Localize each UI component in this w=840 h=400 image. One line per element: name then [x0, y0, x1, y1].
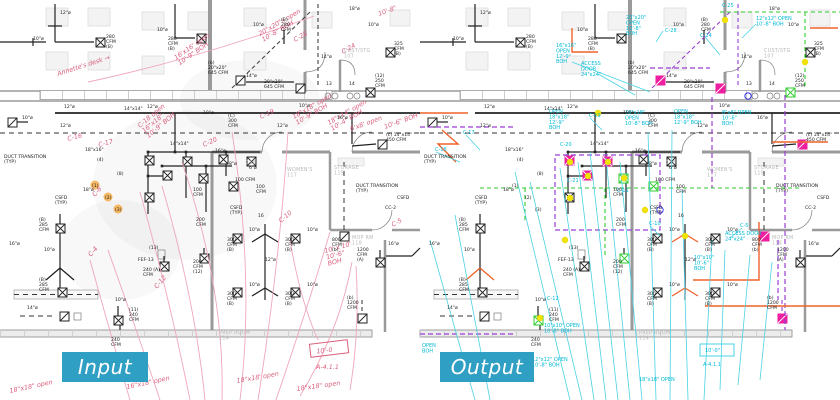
plan-label: 200CFM: [196, 217, 206, 228]
plan-label: 10"ø: [669, 227, 680, 233]
plan-label: 12"ø: [480, 10, 491, 16]
cad-note: C-5: [740, 223, 748, 229]
plan-label: 800CFM(b): [752, 237, 762, 253]
markup-note: 18"x18" open: [9, 378, 54, 395]
plan-label: 300CFM(B): [647, 291, 657, 307]
plan-label: (4): [97, 157, 104, 163]
cad-note: C-10: [649, 221, 661, 227]
plan-label: 18"x16": [505, 147, 524, 153]
plan-label: 10"ø: [669, 282, 680, 288]
plan-label: WOMEN'S117: [287, 167, 313, 178]
plan-label: 1200CFM(A): [357, 247, 369, 263]
cad-note: 20"x20"OPEN10'-8"BOH: [626, 15, 646, 37]
cad-note: OPENBOH: [422, 343, 436, 354]
plan-label: 10"ø: [249, 282, 260, 288]
plan-label: (2): [525, 195, 532, 201]
plan-label: WOMEN'S117: [707, 167, 733, 178]
input-label-badge: Input: [62, 352, 148, 382]
plan-label: 280CFM(B): [526, 34, 536, 50]
markup-note: C-16: [66, 131, 82, 143]
plan-label: 100CFM: [193, 187, 203, 198]
plan-label: DUCT TRANSITION(TYP): [356, 183, 398, 194]
plan-label: 16"ø: [337, 115, 348, 121]
plan-label: 300CFM(B): [705, 237, 715, 253]
plan-label: 16"ø: [757, 115, 768, 121]
plan-label: 10"ø: [307, 282, 318, 288]
plan-label: 280CFM(B): [588, 36, 598, 52]
plan-label: 10"ø: [464, 247, 475, 253]
plan-label: 240CFM: [531, 337, 541, 348]
markup-note: 10'-6" BOH: [383, 111, 419, 131]
plan-label: 10"ø: [727, 282, 738, 288]
plan-label: (13): [569, 245, 579, 251]
plan-label: FEF-13: [138, 257, 154, 263]
plan-label: 12"ø: [64, 104, 75, 110]
plan-label: 300CFM(B): [227, 291, 237, 307]
floorplan-canvas: 10'-0 A-4.1.1 Annette's desk →16'x16' op…: [0, 0, 840, 400]
plan-label: 10"ø: [33, 36, 44, 42]
cad-note: 12"x12" OPEN10'-8" BOH: [532, 357, 568, 368]
plan-label: 240 (A)CFM: [563, 267, 580, 278]
plan-label: 18"x16": [85, 147, 104, 153]
plan-label: 300CFM(B): [705, 291, 715, 307]
plan-label: 10"ø: [203, 110, 214, 116]
cad-note: 18"x18" OPEN: [639, 377, 675, 383]
plan-label: (b)1200CFM: [767, 295, 779, 311]
plan-label: (c) 14"x14"450 CFM: [386, 132, 412, 143]
plan-label: 12"ø: [480, 123, 491, 129]
plan-label: 200CFM(12): [613, 259, 623, 275]
input-drawing-panel: 10'-0 A-4.1.1 Annette's desk →16'x16' op…: [0, 0, 420, 400]
markup-note: 18"x18' open: [236, 370, 279, 385]
plan-label: 10"ø: [249, 227, 260, 233]
plan-label: 10"ø: [307, 227, 318, 233]
plan-label: 10"ø: [719, 103, 730, 109]
markup-note: C-10: [277, 209, 294, 225]
plan-label: 280CFM(B): [106, 34, 116, 50]
plan-label: 13: [326, 81, 332, 87]
output-label-badge: Output: [440, 352, 534, 382]
plan-label: (C)300CFM: [648, 113, 658, 129]
cad-note: ACCESSDOOR24"x24": [581, 61, 601, 78]
plan-label: CSFD: [817, 195, 830, 201]
thermostat-symbol: [745, 93, 751, 99]
drawing-comparison: 10'-0 A-4.1.1 Annette's desk →16'x16' op…: [0, 0, 840, 400]
plan-label: (c) 14"x14"450 CFM: [806, 132, 832, 143]
plan-label: 100CFM: [613, 187, 623, 198]
plan-label: 100CFM: [256, 184, 266, 195]
plan-label: 16"ø: [215, 148, 226, 154]
plan-label: CSFD(TYP): [650, 205, 663, 216]
plan-label: (12)250CFM: [375, 73, 385, 89]
plan-label: CC-2: [805, 205, 816, 211]
cad-note: 8"x8" OPEN10'-6"BOH: [722, 110, 752, 127]
plan-label: 10"ø: [44, 247, 55, 253]
plan-label: (11)240CFM: [129, 307, 139, 323]
cad-note: C-17: [463, 130, 475, 136]
plan-label: 6"ø: [669, 165, 677, 171]
plan-label: 10"ø: [623, 110, 634, 116]
cad-note: C-24: [700, 33, 712, 39]
plan-label: 10"ø: [22, 115, 33, 121]
cad-note: C-12: [547, 296, 559, 302]
plan-label: (b)20"x20"645 CFM: [628, 60, 648, 76]
plan-label: 300CFM(B): [285, 291, 295, 307]
plan-label: DUCT TRANSITION(TYP): [424, 154, 466, 165]
plan-label: DUCT TRANSITION(TYP): [4, 154, 46, 165]
plan-label: CUST/STG107: [764, 48, 791, 59]
plan-label: CUST/STG107: [344, 48, 371, 59]
plan-label: 14"x14": [544, 106, 563, 112]
plan-label: 16"ø: [388, 241, 399, 247]
plan-label: 300CFM(B): [227, 237, 237, 253]
plan-label: (1): [92, 183, 99, 189]
plan-label: 1200CFM(A): [777, 247, 789, 263]
plan-label: (8): [537, 171, 544, 177]
plan-label: 8"ø: [229, 161, 237, 167]
plan-label: (8): [117, 171, 124, 177]
cad-note: C-20: [560, 142, 572, 148]
plan-label: 13: [746, 81, 752, 87]
plan-label: 12"ø: [60, 10, 71, 16]
cad-note: C-21: [567, 178, 579, 184]
input-label-text: Input: [78, 355, 132, 379]
plan-label: CSFD(TYP): [55, 195, 68, 206]
plan-label: FEF-13: [558, 257, 574, 263]
plan-label: 10"ø: [442, 115, 453, 121]
plan-label: 20"x20"645 CFM: [684, 79, 704, 90]
plan-label: 14"x14": [170, 141, 189, 147]
plan-label: (B)285CFM: [459, 217, 469, 233]
plan-label: 12"ø: [697, 123, 708, 129]
plan-label: STORAGE115: [334, 165, 359, 176]
cad-sheet-ref: A-4.1.1: [703, 362, 721, 368]
plan-label: (3): [535, 207, 542, 213]
plan-label: 12"ø: [147, 104, 158, 110]
output-label-text: Output: [451, 355, 523, 379]
plan-label: 12"ø: [60, 123, 71, 129]
plan-label: 18"ø: [769, 6, 780, 12]
plan-label: PREP ROOM114: [219, 330, 250, 341]
plan-label: 240CFM: [111, 337, 121, 348]
plan-label: 10"ø: [299, 103, 310, 109]
plan-label: 100 CFM: [235, 177, 255, 183]
plan-label: 300CFM(B): [647, 237, 657, 253]
plan-label: 14"ø: [741, 54, 752, 60]
plan-label: 100CFM: [676, 184, 686, 195]
plan-label: 14"ø: [246, 73, 257, 79]
markup-note: C-5: [390, 216, 403, 228]
plan-label: CSFD: [397, 195, 410, 201]
markup-dim-note: 10'-0: [316, 346, 333, 356]
plan-label: 14"x14": [590, 141, 609, 147]
plan-label: 12"ø: [277, 123, 288, 129]
plan-label: 10"ø: [115, 297, 126, 303]
plan-label: (3): [115, 207, 122, 213]
plan-label: 10"ø: [253, 22, 264, 28]
markup-note: 18"x18" open: [296, 379, 341, 393]
cad-note: 12"x12" OPEN10'-8" BOH: [756, 16, 792, 27]
plan-label: 16: [258, 213, 264, 219]
cad-note: C-19: [589, 113, 601, 119]
plan-label: 14"ø: [321, 54, 332, 60]
plan-label: 16: [678, 213, 684, 219]
cad-note: 10"x10"10'-6"BOH: [694, 255, 714, 272]
plan-label: (12)250CFM: [795, 73, 805, 89]
plan-label: 16"ø: [9, 241, 20, 247]
plan-label: MOP RM118: [352, 235, 374, 246]
plan-label: 16"ø: [635, 148, 646, 154]
plan-label: 100 CFM: [655, 177, 675, 183]
plan-label: 8"ø: [649, 161, 657, 167]
plan-label: 12"ø: [265, 257, 276, 263]
plan-label: (2): [105, 195, 112, 201]
plan-label: PREP ROOM114: [639, 330, 670, 341]
plan-label: (1): [512, 183, 519, 189]
plan-label: 10"ø: [368, 22, 379, 28]
plan-label: 14"ø: [447, 305, 458, 311]
plan-label: 18"ø: [349, 6, 360, 12]
plan-label: STORAGE115: [754, 165, 779, 176]
plan-label: (B)285CFM: [39, 217, 49, 233]
plan-label: 280CFM(B): [168, 36, 178, 52]
plan-label: 200CFM: [616, 217, 626, 228]
plan-label: CSFD(TYP): [475, 195, 488, 206]
plan-label: 12"ø: [685, 257, 696, 263]
plan-label: CC-2: [385, 205, 396, 211]
plan-label: 10"ø: [788, 22, 799, 28]
plan-label: 14"x14": [124, 106, 143, 112]
plan-label: 10"ø: [535, 297, 546, 303]
plan-label: 10"ø: [727, 227, 738, 233]
plan-label: 14"ø: [27, 305, 38, 311]
plan-label: 6"ø: [249, 165, 257, 171]
cad-note: C-16: [435, 147, 447, 153]
plan-label: MOP RM118: [772, 235, 794, 246]
cad-note: C-25: [722, 3, 734, 9]
plan-label: 12"ø: [484, 104, 495, 110]
plan-label: 12"ø: [567, 104, 578, 110]
plan-label: 16"ø: [808, 241, 819, 247]
plan-label: (4): [517, 157, 524, 163]
plan-label: 200CFM(12): [193, 259, 203, 275]
plan-label: (b)20"x20"645 CFM: [208, 60, 228, 76]
plan-label: 300CFM(B): [285, 237, 295, 253]
plan-label: 10"ø: [673, 22, 684, 28]
plan-label: 10"ø: [577, 27, 588, 33]
markup-sheet-ref: A-4.1.1: [315, 363, 339, 371]
plan-label: 325CFM(B): [814, 41, 824, 57]
plan-label: (11)240CFM: [549, 307, 559, 323]
plan-label: CSFD(TYP): [230, 205, 243, 216]
plan-label: (13): [149, 245, 159, 251]
plan-label: 16"ø: [429, 241, 440, 247]
cad-dim-note: 10'-0": [705, 348, 720, 354]
plan-label: 20"x20"645 CFM: [264, 79, 284, 90]
output-drawing-panel: 10'-0" A-4.1.1 16"x16"OPEN12'-9"BOHACCES…: [420, 0, 840, 400]
plan-label: 14"ø: [666, 73, 677, 79]
plan-label: DUCT TRANSITION(TYP): [776, 183, 818, 194]
cad-note: C-28: [665, 28, 677, 34]
plan-label: 10"ø: [453, 36, 464, 42]
plan-label: 14: [349, 81, 355, 87]
plan-label: (B)280CFM: [701, 17, 711, 33]
plan-label: 10"ø: [157, 27, 168, 33]
plan-label: 325CFM(B): [394, 41, 404, 57]
plan-label: 14: [769, 81, 775, 87]
